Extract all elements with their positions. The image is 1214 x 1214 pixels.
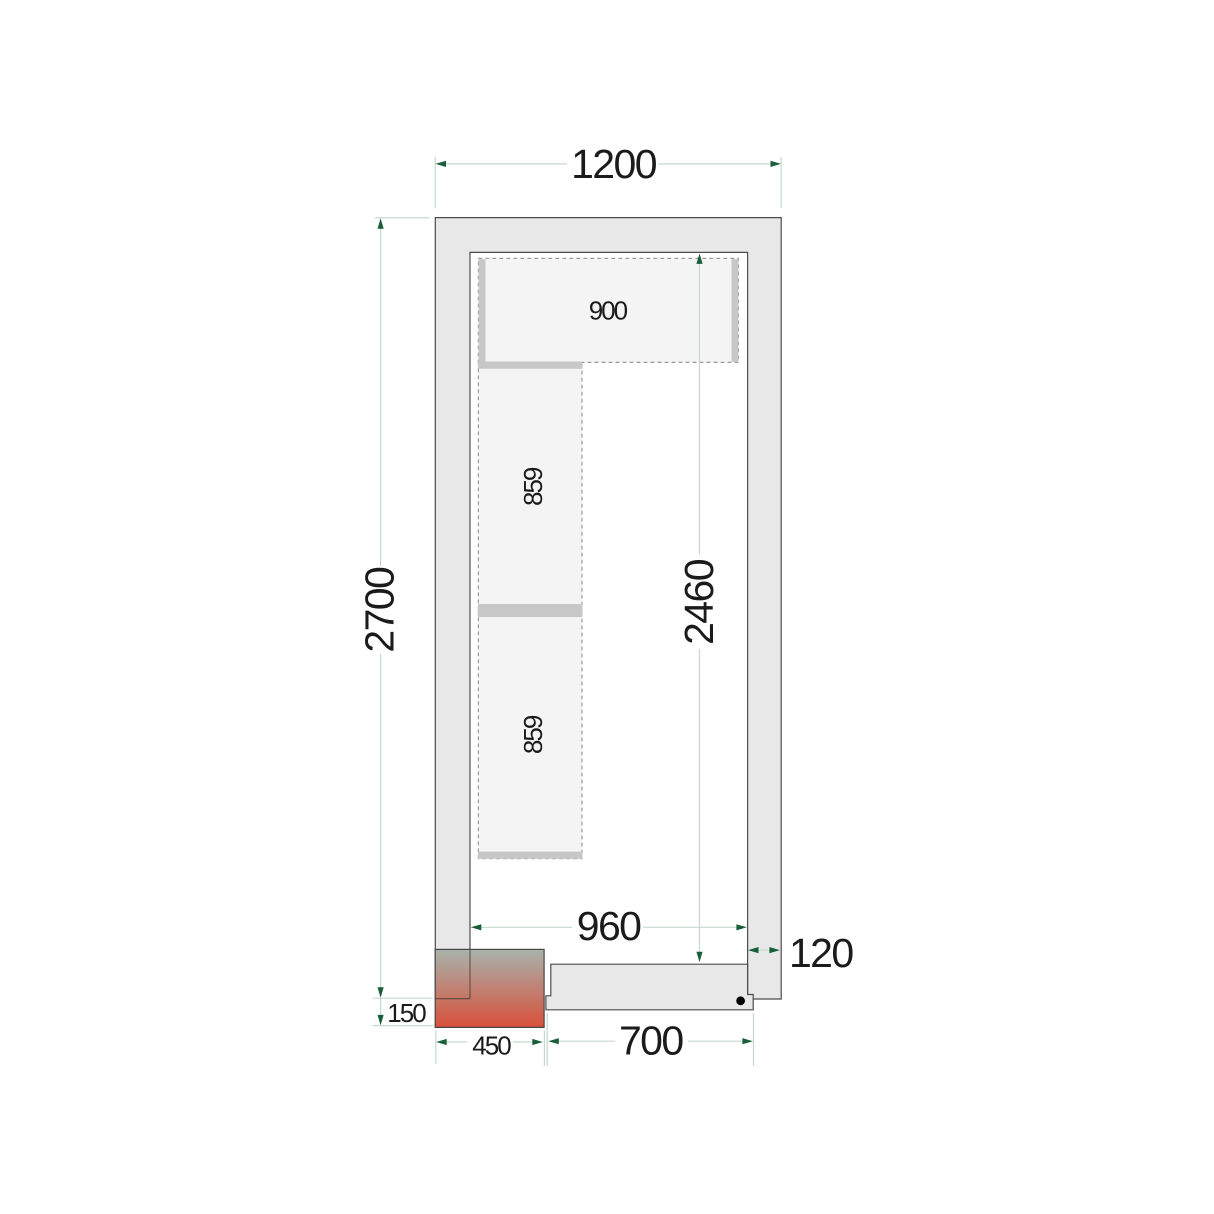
svg-text:150: 150: [387, 998, 426, 1028]
svg-text:450: 450: [472, 1031, 511, 1061]
svg-text:2460: 2460: [676, 559, 722, 645]
svg-text:120: 120: [789, 930, 853, 976]
svg-text:2700: 2700: [357, 567, 403, 653]
svg-text:859: 859: [518, 715, 548, 754]
svg-text:1200: 1200: [571, 141, 657, 187]
svg-text:900: 900: [589, 296, 628, 326]
svg-text:700: 700: [619, 1018, 683, 1064]
svg-text:960: 960: [577, 903, 641, 949]
svg-text:859: 859: [518, 467, 548, 506]
